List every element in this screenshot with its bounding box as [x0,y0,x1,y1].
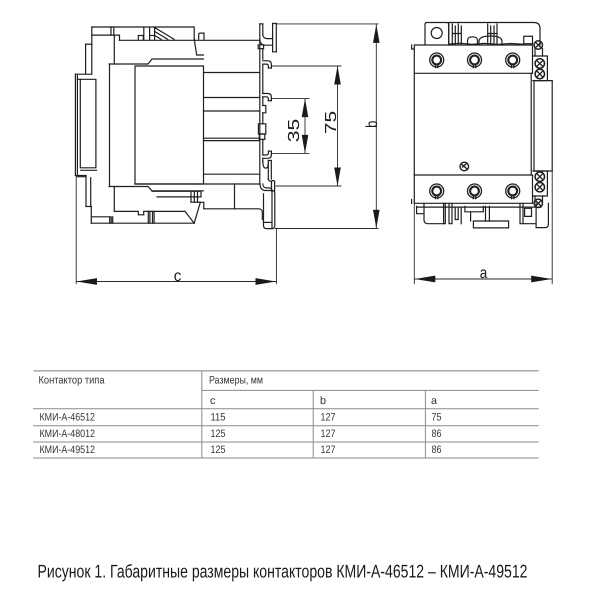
svg-text:a: a [480,265,488,282]
svg-text:75: 75 [432,412,442,424]
svg-text:b: b [364,121,381,128]
svg-text:c: c [174,268,182,285]
svg-text:Рисунок 1. Габаритные размеры: Рисунок 1. Габаритные размеры контакторо… [38,561,528,582]
svg-text:75: 75 [323,111,340,135]
svg-text:b: b [320,395,326,407]
svg-text:127: 127 [321,412,336,424]
svg-text:КМИ-А-49512: КМИ-А-49512 [40,444,96,456]
svg-text:a: a [431,395,437,407]
svg-text:КМИ-А-48012: КМИ-А-48012 [40,428,96,440]
svg-text:86: 86 [432,428,442,440]
svg-text:86: 86 [432,444,442,456]
svg-text:125: 125 [211,444,226,456]
svg-text:35: 35 [286,119,303,143]
svg-text:125: 125 [211,428,226,440]
svg-text:Размеры, мм: Размеры, мм [209,375,263,387]
svg-text:c: c [210,395,216,407]
svg-text:Контактор типа: Контактор типа [39,375,105,387]
svg-text:127: 127 [321,444,336,456]
svg-text:КМИ-А-46512: КМИ-А-46512 [40,412,96,424]
svg-text:127: 127 [321,428,336,440]
svg-text:115: 115 [211,412,226,424]
